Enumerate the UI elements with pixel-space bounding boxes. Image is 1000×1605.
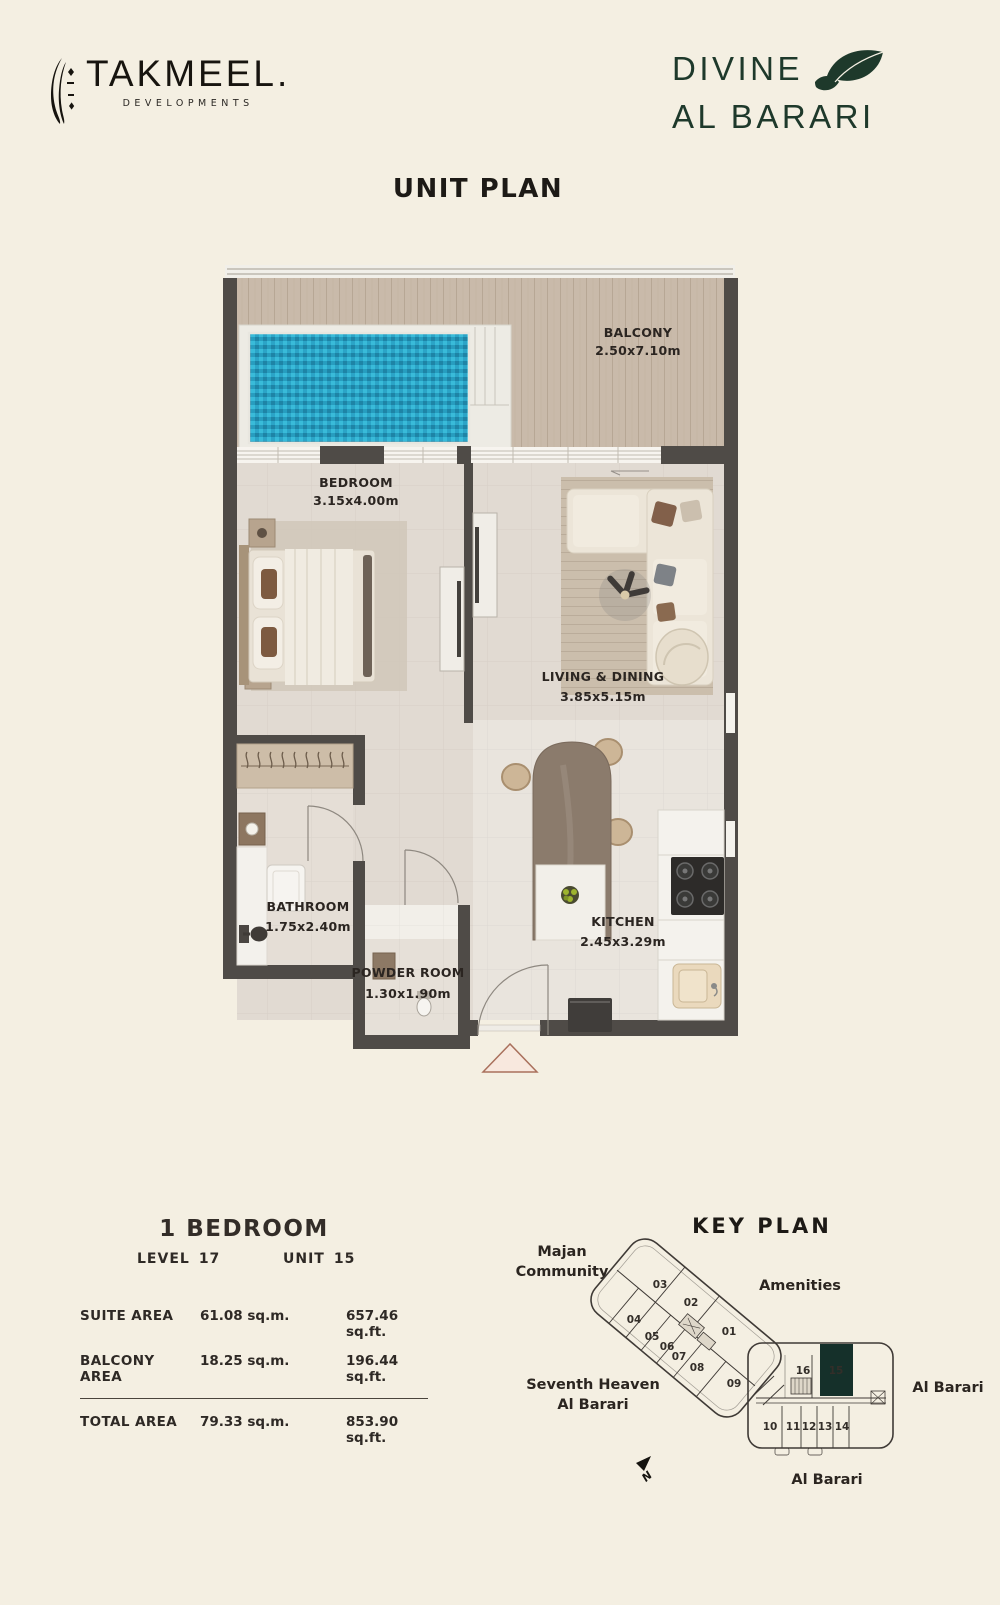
living-dining-label: LIVING & DINING [542,669,665,684]
bathroom-label: BATHROOM [267,899,350,914]
divine-al-barari-logo: DIVINE AL BARARI [672,48,895,137]
kp-unit-05: 05 [645,1331,660,1343]
kp-unit-09: 09 [727,1378,742,1390]
wardrobe [237,744,353,788]
bedroom-dims: 3.15x4.00m [313,493,399,508]
kp-unit-10: 10 [763,1421,778,1433]
divine-line2: AL BARARI [672,96,875,137]
powder-room-label: POWDER ROOM [351,965,464,980]
takmeel-calligraphy-icon [46,54,80,130]
kp-unit-03: 03 [653,1279,668,1291]
unit-plan-page: TAKMEEL. DEVELOPMENTS DIVINE AL BARARI U… [0,0,1000,1605]
suite-area-sqft: 657.46 sq.ft. [346,1308,432,1340]
balcony-dims: 2.50x7.10m [595,343,681,358]
kp-unit-04: 04 [627,1314,642,1326]
balcony-area-sqm: 18.25 sq.m. [200,1353,346,1369]
north-label: N [639,1469,655,1485]
kp-unit-16: 16 [796,1365,811,1377]
balcony-label: BALCONY [604,325,673,340]
kitchen-label: KITCHEN [591,914,655,929]
powder-room-dims: 1.30x1.90m [365,986,451,1001]
total-area-label: TOTAL AREA [80,1414,200,1430]
kp-unit-08: 08 [690,1362,705,1374]
unit-value: 15 [334,1251,355,1267]
kp-unit-01: 01 [722,1326,737,1338]
entrance-threshold [478,1025,540,1031]
unit-label: UNIT [283,1251,325,1267]
level-value: 17 [199,1251,220,1267]
key-plan-drawing: 03 02 01 04 05 06 07 08 09 16 15 10 11 1… [560,1230,960,1500]
kp-unit-11: 11 [786,1421,801,1433]
key-plan-angled-wing [584,1232,789,1425]
unit-info: UNIT15 [283,1251,355,1267]
total-area-row: TOTAL AREA 79.33 sq.m. 853.90 sq.ft. [80,1414,432,1446]
total-area-sqft: 853.90 sq.ft. [346,1414,432,1446]
kp-unit-12: 12 [802,1421,817,1433]
north-arrow-icon: N [636,1456,655,1484]
floor-plan-drawing: BALCONY 2.50x7.10m BEDROOM 3.15x4.00m LI… [223,265,758,1075]
balcony-area-label: BALCONY AREA [80,1353,200,1385]
right-wall-window [726,693,735,733]
living-room-furniture [561,477,713,695]
balcony-area-row: BALCONY AREA 18.25 sq.m. 196.44 sq.ft. [80,1353,432,1385]
level-label: LEVEL [137,1251,190,1267]
unit-type-title: 1 BEDROOM [159,1216,329,1242]
leaf-icon [813,42,895,96]
living-dining-dims: 3.85x5.15m [560,689,646,704]
entrance-marker [483,1044,537,1072]
takmeel-subtitle: DEVELOPMENTS [123,98,254,109]
kp-unit-14: 14 [835,1421,850,1433]
kp-unit-15: 15 [829,1365,844,1377]
key-plan-unit-numbers: 03 02 01 04 05 06 07 08 09 16 15 10 11 1… [627,1279,850,1433]
takmeel-logo: TAKMEEL. DEVELOPMENTS [46,54,290,130]
divine-line1: DIVINE [672,48,803,89]
bedroom-label: BEDROOM [319,475,393,490]
balcony-area-sqft: 196.44 sq.ft. [346,1353,432,1385]
kp-unit-07: 07 [672,1351,687,1363]
kitchen-dims: 2.45x3.29m [580,934,666,949]
suite-area-label: SUITE AREA [80,1308,200,1324]
suite-area-sqm: 61.08 sq.m. [200,1308,346,1324]
kp-unit-13: 13 [818,1421,833,1433]
bathroom-dims: 1.75x2.40m [265,919,351,934]
floor-plan: BALCONY 2.50x7.10m BEDROOM 3.15x4.00m LI… [223,265,758,1079]
area-table-divider [80,1398,428,1399]
bed [239,519,407,691]
balcony-balustrade [225,265,735,278]
takmeel-wordmark: TAKMEEL. [86,54,290,95]
kp-unit-02: 02 [684,1297,699,1309]
page-title: UNIT PLAN [393,174,563,204]
total-area-sqm: 79.33 sq.m. [200,1414,346,1430]
suite-area-row: SUITE AREA 61.08 sq.m. 657.46 sq.ft. [80,1308,432,1340]
level-info: LEVEL17 [137,1251,220,1267]
area-table: SUITE AREA 61.08 sq.m. 657.46 sq.ft. BAL… [80,1308,432,1459]
pool [239,325,511,449]
right-wall-window-2 [726,821,735,857]
